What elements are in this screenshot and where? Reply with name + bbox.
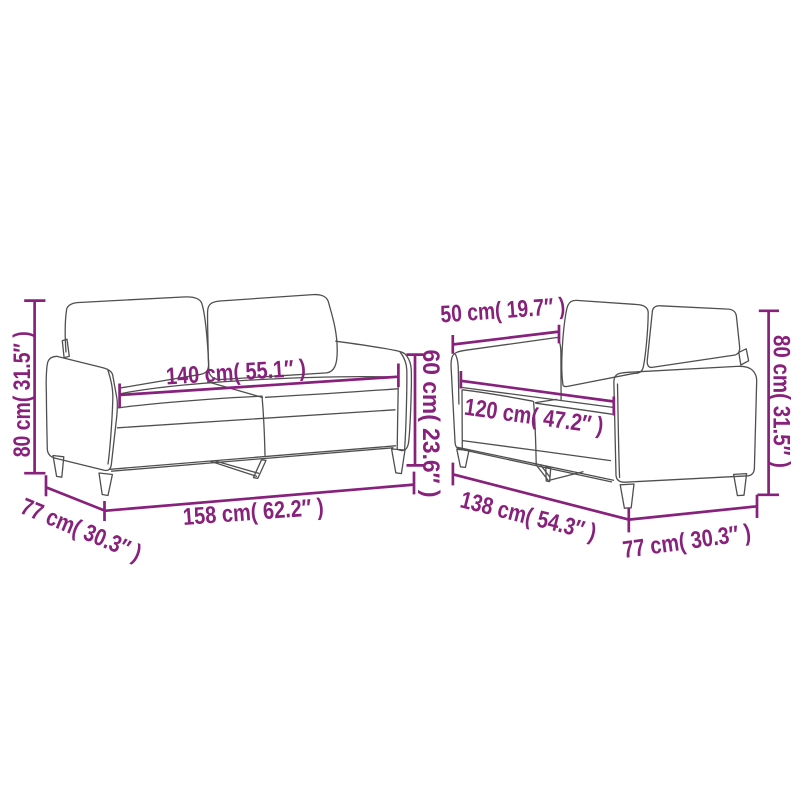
svg-text:80 cm( 31.5″ ): 80 cm( 31.5″ ) (767, 335, 794, 468)
svg-text:60 cm( 23.6″ ): 60 cm( 23.6″ ) (417, 350, 444, 498)
svg-text:80 cm( 31.5″ ): 80 cm( 31.5″ ) (9, 331, 36, 457)
